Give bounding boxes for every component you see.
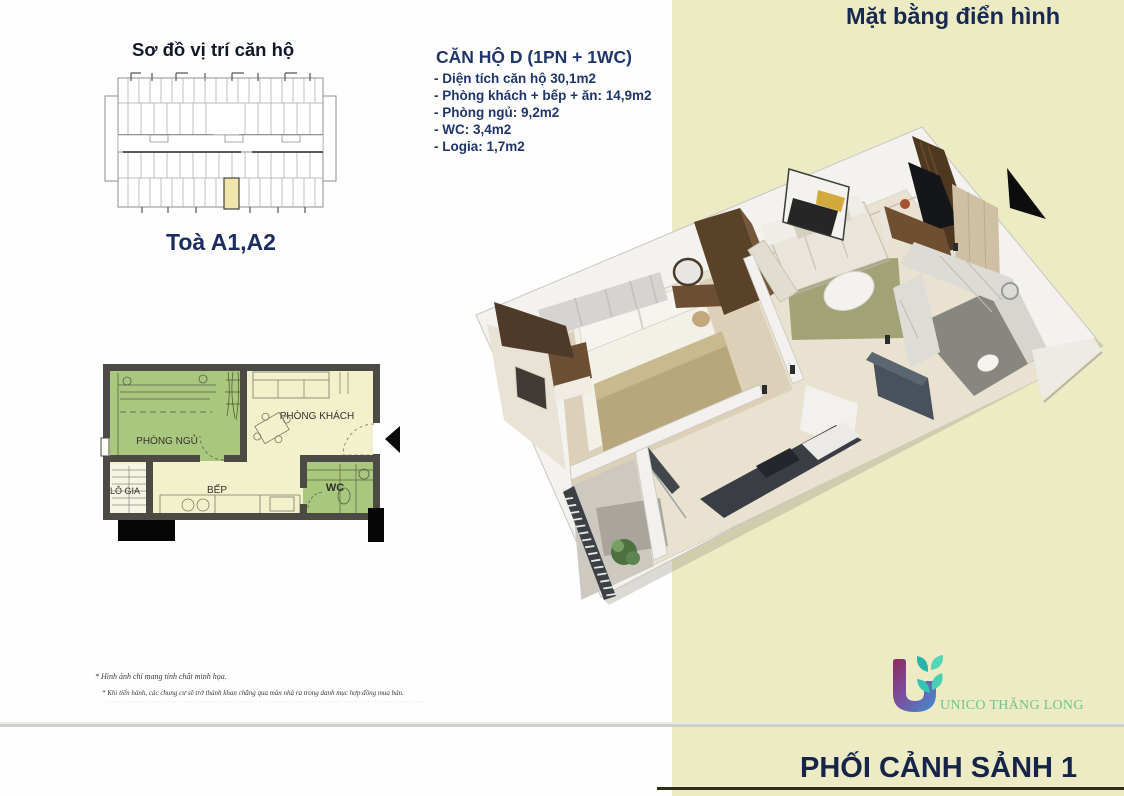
svg-text:LÔ GIA: LÔ GIA (110, 486, 140, 496)
svg-text:BẾP: BẾP (207, 483, 227, 496)
svg-text:PHÒNG KHÁCH: PHÒNG KHÁCH (280, 409, 354, 422)
svg-text:PHÒNG NGỦ: PHÒNG NGỦ (136, 434, 198, 447)
svg-text:WC: WC (326, 482, 344, 494)
svg-text:UNICO THĂNG LONG: UNICO THĂNG LONG (940, 696, 1084, 713)
